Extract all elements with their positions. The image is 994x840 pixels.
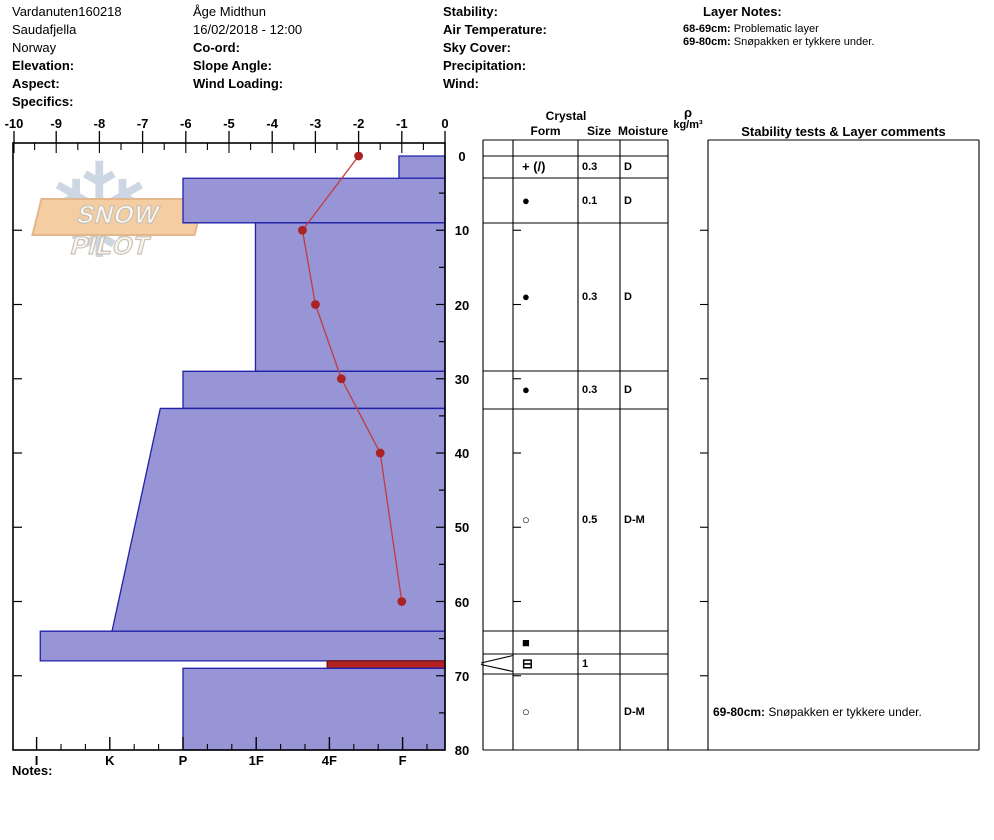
temperature-point	[337, 374, 346, 383]
layer-comment-range: 69-80cm:	[713, 705, 765, 719]
density-unit: kg/m³	[668, 119, 708, 132]
stability-tests-header: Stability tests & Layer comments	[708, 124, 979, 139]
depth-tick-label: 80	[446, 743, 478, 758]
moisture-cell: D	[624, 161, 668, 174]
crystal-form-cell: ○	[522, 512, 576, 527]
hardness-layer-bar	[183, 668, 445, 750]
temp-tick-label: 0	[430, 116, 460, 131]
crystal-form-cell: ■	[522, 635, 576, 650]
depth-tick-label: 50	[446, 520, 478, 535]
temp-tick-label: -2	[344, 116, 374, 131]
form-header: Form	[513, 124, 578, 138]
crystal-form-cell: ⊟	[522, 656, 576, 671]
moisture-cell: D-M	[624, 706, 668, 719]
depth-tick-label: 10	[446, 223, 478, 238]
depth-tick-label: 20	[446, 298, 478, 313]
hardness-tick-label: K	[95, 753, 125, 768]
moisture-cell: D-M	[624, 514, 668, 527]
crystal-size-cell: 0.5	[582, 514, 618, 527]
density-header: ρ	[668, 105, 708, 120]
moisture-header: Moisture	[616, 124, 670, 138]
temperature-point	[311, 300, 320, 309]
depth-tick-label: 0	[446, 149, 478, 164]
crystal-size-cell: 1	[582, 658, 618, 671]
crystal-form-cell: ●	[522, 289, 576, 304]
crystal-size-cell: 0.1	[582, 195, 618, 208]
temp-tick-label: -4	[257, 116, 287, 131]
hardness-tick-label: P	[168, 753, 198, 768]
problem-layer-bar	[327, 661, 445, 668]
crystal-header: Crystal	[536, 109, 596, 123]
temp-tick-label: -7	[128, 116, 158, 131]
hardness-layer-bar	[399, 156, 445, 178]
crystal-size-cell: 0.3	[582, 384, 618, 397]
layer-comment-text: Snøpakken er tykkere under.	[765, 705, 922, 719]
temp-tick-label: -8	[84, 116, 114, 131]
temp-tick-label: -9	[41, 116, 71, 131]
size-header: Size	[578, 124, 620, 138]
crystal-size-cell: 0.3	[582, 291, 618, 304]
layer-comment: 69-80cm: Snøpakken er tykkere under.	[713, 705, 975, 719]
crystal-size-cell: 0.3	[582, 161, 618, 174]
temperature-point	[397, 597, 406, 606]
hardness-tick-label: 1F	[241, 753, 271, 768]
crystal-form-cell: ●	[522, 382, 576, 397]
temperature-point	[354, 152, 363, 161]
depth-tick-label: 70	[446, 669, 478, 684]
hardness-tick-label: F	[388, 753, 418, 768]
temp-tick-label: -6	[171, 116, 201, 131]
temperature-point	[298, 226, 307, 235]
problem-layer-arrow-icon	[481, 656, 513, 664]
hardness-layer-bar	[255, 223, 445, 372]
temp-tick-label: -5	[214, 116, 244, 131]
crystal-form-cell: + (/)	[522, 159, 576, 174]
moisture-cell: D	[624, 291, 668, 304]
temp-tick-label: -10	[0, 116, 29, 131]
moisture-cell: D	[624, 384, 668, 397]
hardness-layer-bar	[40, 631, 445, 661]
crystal-form-cell: ●	[522, 193, 576, 208]
hardness-tick-label: 4F	[314, 753, 344, 768]
temperature-point	[376, 449, 385, 458]
temp-tick-label: -1	[387, 116, 417, 131]
snowpilot-report: Vardanuten160218 Saudafjella Norway Elev…	[0, 0, 994, 840]
hardness-layer-bar	[112, 408, 445, 631]
crystal-form-cell: ○	[522, 704, 576, 719]
depth-tick-label: 60	[446, 595, 478, 610]
hardness-layer-bar	[183, 178, 445, 223]
depth-tick-label: 30	[446, 372, 478, 387]
temp-tick-label: -3	[300, 116, 330, 131]
depth-tick-label: 40	[446, 446, 478, 461]
moisture-cell: D	[624, 195, 668, 208]
problem-layer-arrow-icon	[481, 665, 513, 672]
hardness-tick-label: I	[22, 753, 52, 768]
hardness-layer-bar	[183, 371, 445, 408]
